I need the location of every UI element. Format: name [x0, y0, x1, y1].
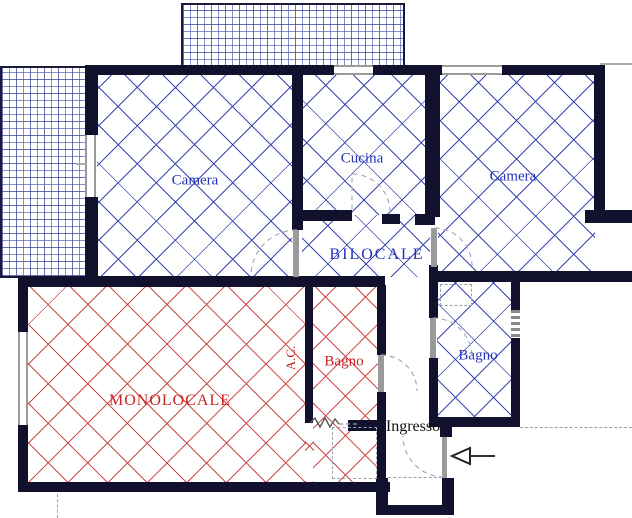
- wall: [18, 276, 385, 287]
- floor-plan: Camera Cucina Camera BILOCALE Bagno MONO…: [0, 0, 632, 518]
- threshold-dashed-line: [388, 477, 442, 479]
- wall: [594, 65, 605, 212]
- wall: [511, 338, 520, 422]
- wall: [585, 210, 632, 223]
- door-leaf-camera-left: [293, 230, 299, 277]
- wall: [85, 65, 98, 135]
- wall: [430, 65, 440, 217]
- window-monolocale: [18, 332, 28, 425]
- room-cucina: [302, 75, 426, 215]
- wall: [511, 282, 520, 310]
- wall: [377, 285, 386, 355]
- entrance-arrow-icon: [452, 448, 470, 464]
- wall-ac-shaft: [305, 287, 313, 423]
- window-camera-left: [85, 135, 96, 197]
- label-bagno-monolocale: Bagno: [324, 354, 363, 371]
- room-monolocale: [28, 287, 306, 483]
- room-monolocale-gap: [305, 423, 314, 482]
- wall: [292, 75, 303, 230]
- wall: [429, 358, 438, 422]
- wall: [429, 282, 438, 318]
- dashed-line: [57, 494, 59, 518]
- door-leaf-bagno-bilocale: [430, 318, 436, 358]
- wall: [377, 392, 386, 483]
- door-arc-bagno-monolocale: [381, 355, 417, 391]
- label-camera-left: Camera: [172, 173, 219, 190]
- wall: [85, 65, 334, 75]
- window-camera-right: [442, 65, 502, 75]
- door-leaf-entrance: [442, 437, 447, 478]
- fixture-dashed-box: [440, 284, 472, 306]
- balcony-top: [181, 3, 405, 67]
- label-bagno-bilocale: Bagno: [458, 348, 497, 365]
- label-ac-shaft: A.C.: [283, 346, 299, 371]
- wall: [18, 283, 28, 332]
- wall-vestibule: [442, 478, 454, 515]
- wall: [440, 425, 452, 437]
- wall: [18, 425, 28, 487]
- thin-line: [600, 63, 632, 65]
- wall: [382, 214, 400, 224]
- label-ingresso: Ingresso: [386, 418, 440, 436]
- wall: [85, 197, 98, 278]
- dashed-line: [520, 427, 632, 429]
- door-leaf-bagno-monolocale: [378, 355, 384, 392]
- window-tick: [76, 163, 86, 165]
- fixture-dashed-box: [332, 427, 377, 479]
- wall: [502, 65, 600, 75]
- label-bilocale: BILOCALE: [329, 246, 424, 264]
- label-cucina: Cucina: [341, 151, 384, 168]
- window-balcony-door: [334, 65, 373, 75]
- label-camera-right: Camera: [490, 169, 537, 186]
- label-monolocale: MONOLOCALE: [109, 392, 231, 410]
- door-arc-entrance: [403, 436, 444, 477]
- wall: [298, 210, 352, 221]
- window-bagno-bilocale: [511, 310, 520, 338]
- balcony-left: [0, 66, 86, 278]
- door-leaf-corridor: [431, 228, 437, 267]
- wall: [429, 271, 632, 282]
- wall: [18, 482, 390, 492]
